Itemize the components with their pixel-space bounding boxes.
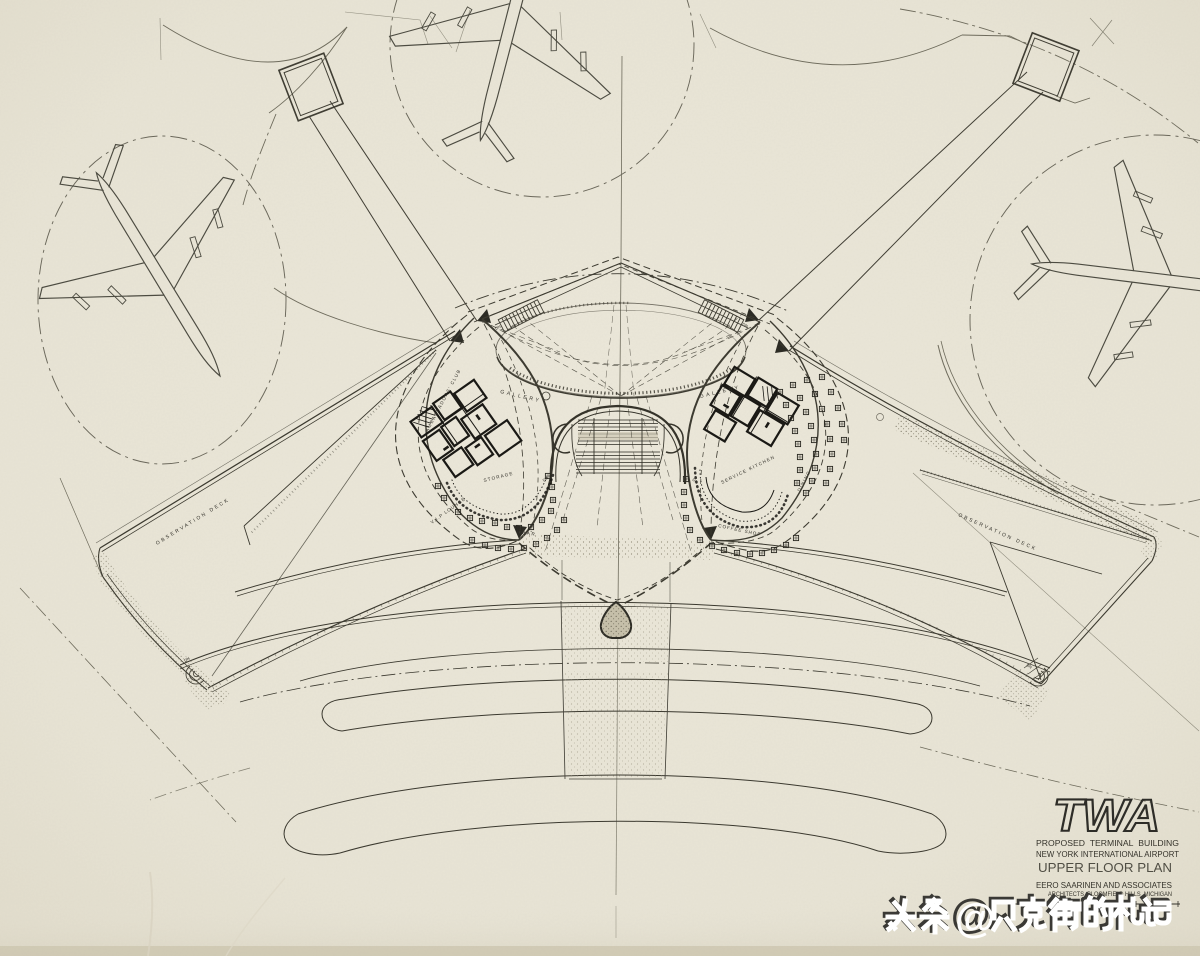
svg-text:PROPOSED TERMINAL BUILDING: PROPOSED TERMINAL BUILDING [1036, 838, 1179, 848]
svg-text:NEW YORK INTERNATIONAL AIRPORT: NEW YORK INTERNATIONAL AIRPORT [1036, 849, 1180, 859]
svg-text:TWA: TWA [1053, 790, 1160, 841]
svg-text:EERO SAARINEN AND ASSOCIATES: EERO SAARINEN AND ASSOCIATES [1036, 880, 1172, 890]
svg-text:@: @ [955, 895, 995, 941]
svg-text:UPPER FLOOR PLAN: UPPER FLOOR PLAN [1038, 861, 1172, 875]
svg-text:ARCHITECTS BLOOMFIELD HILLS: ARCHITECTS BLOOMFIELD HILLS MICHIGAN [1048, 891, 1172, 898]
